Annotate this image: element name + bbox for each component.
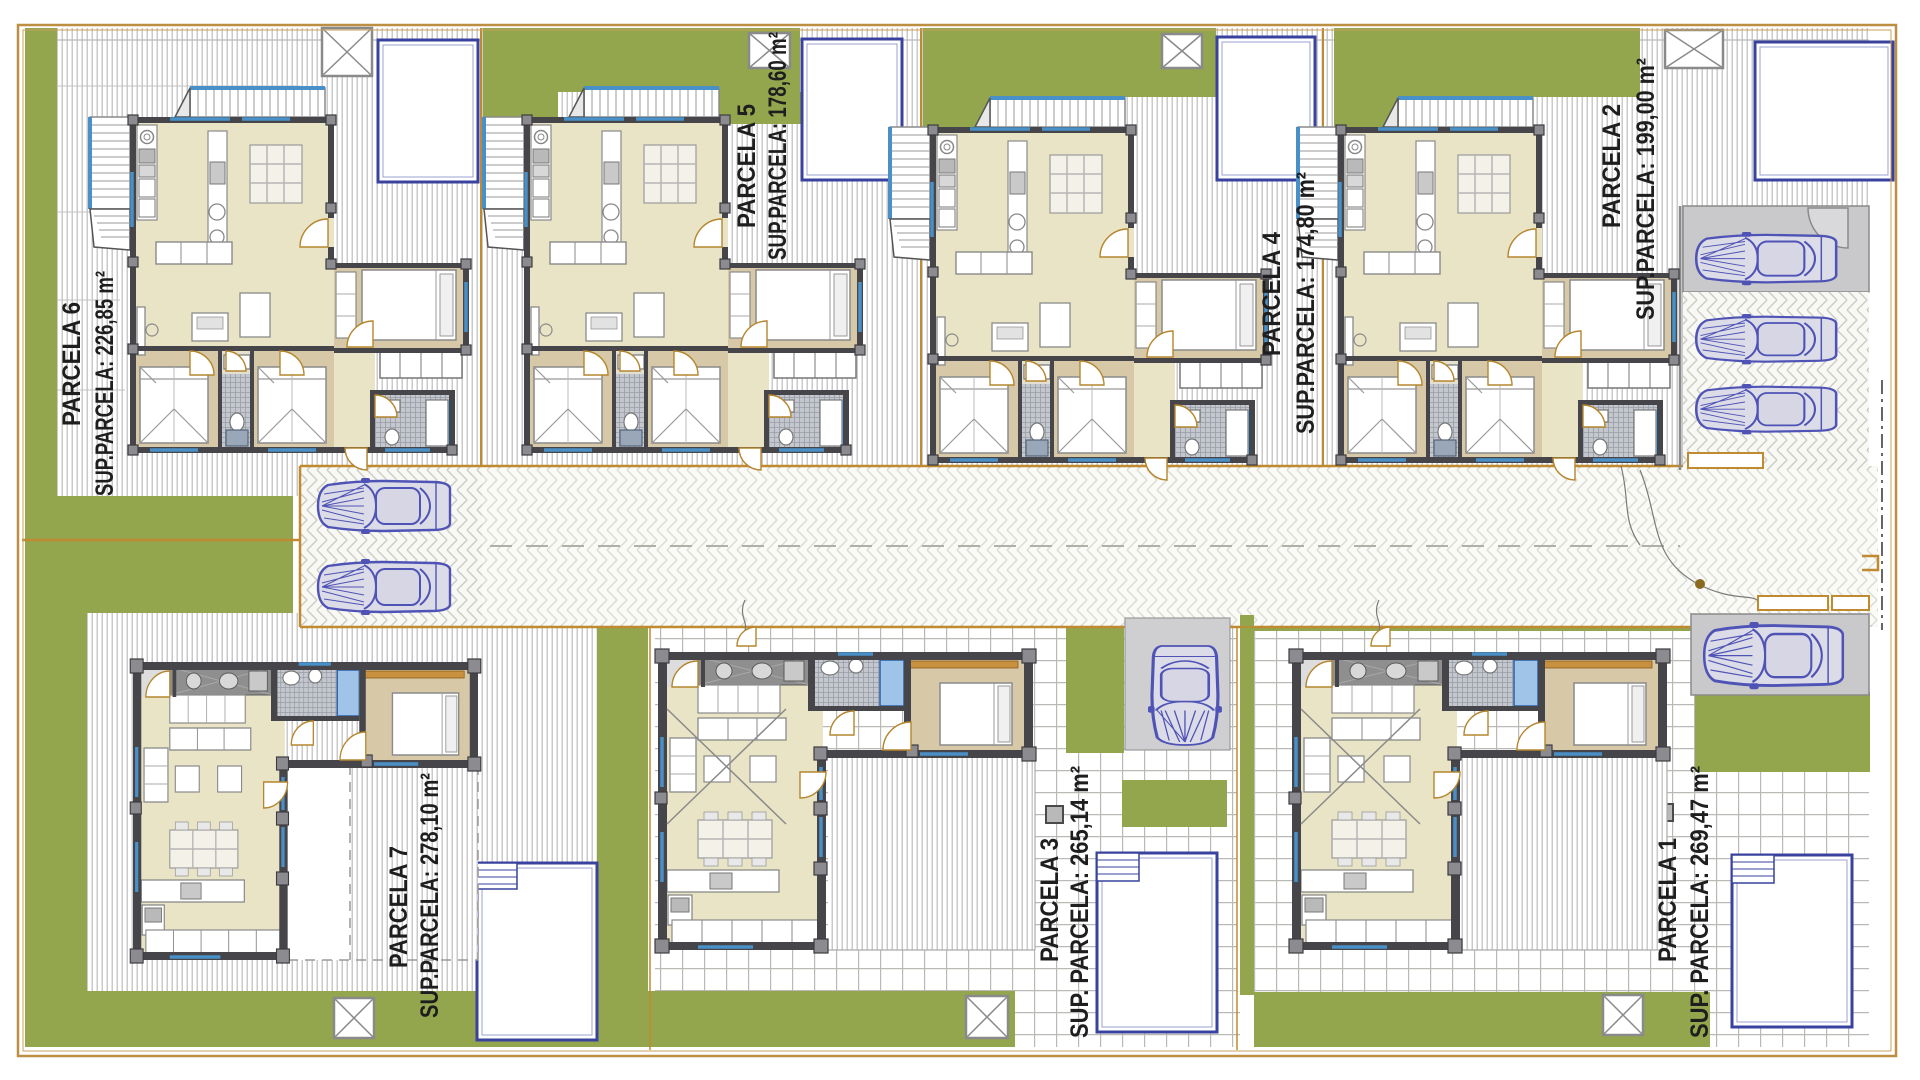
svg-text:SUP.PARCELA: 278,10 m²: SUP.PARCELA: 278,10 m² bbox=[417, 773, 445, 1018]
svg-text:SUP. PARCELA: 269,47 m²: SUP. PARCELA: 269,47 m² bbox=[1687, 766, 1715, 1038]
svg-text:SUP.PARCELA: 226,85 m²: SUP.PARCELA: 226,85 m² bbox=[92, 271, 120, 496]
svg-text:PARCELA 7: PARCELA 7 bbox=[386, 846, 414, 968]
svg-text:SUP.PARCELA: 199,00 m²: SUP.PARCELA: 199,00 m² bbox=[1633, 58, 1661, 320]
svg-text:PARCELA 4: PARCELA 4 bbox=[1259, 231, 1287, 356]
svg-text:PARCELA 6: PARCELA 6 bbox=[59, 302, 87, 426]
svg-text:SUP.PARCELA: 178,60 m²: SUP.PARCELA: 178,60 m² bbox=[765, 32, 793, 260]
svg-text:PARCELA 3: PARCELA 3 bbox=[1037, 838, 1065, 962]
svg-text:SUP.PARCELA: 174,80 m²: SUP.PARCELA: 174,80 m² bbox=[1293, 172, 1321, 434]
svg-text:PARCELA 5: PARCELA 5 bbox=[734, 104, 762, 228]
svg-text:PARCELA 2: PARCELA 2 bbox=[1599, 104, 1627, 228]
svg-text:PARCELA 1: PARCELA 1 bbox=[1655, 838, 1683, 962]
svg-text:SUP. PARCELA: 265,14 m²: SUP. PARCELA: 265,14 m² bbox=[1067, 766, 1095, 1038]
